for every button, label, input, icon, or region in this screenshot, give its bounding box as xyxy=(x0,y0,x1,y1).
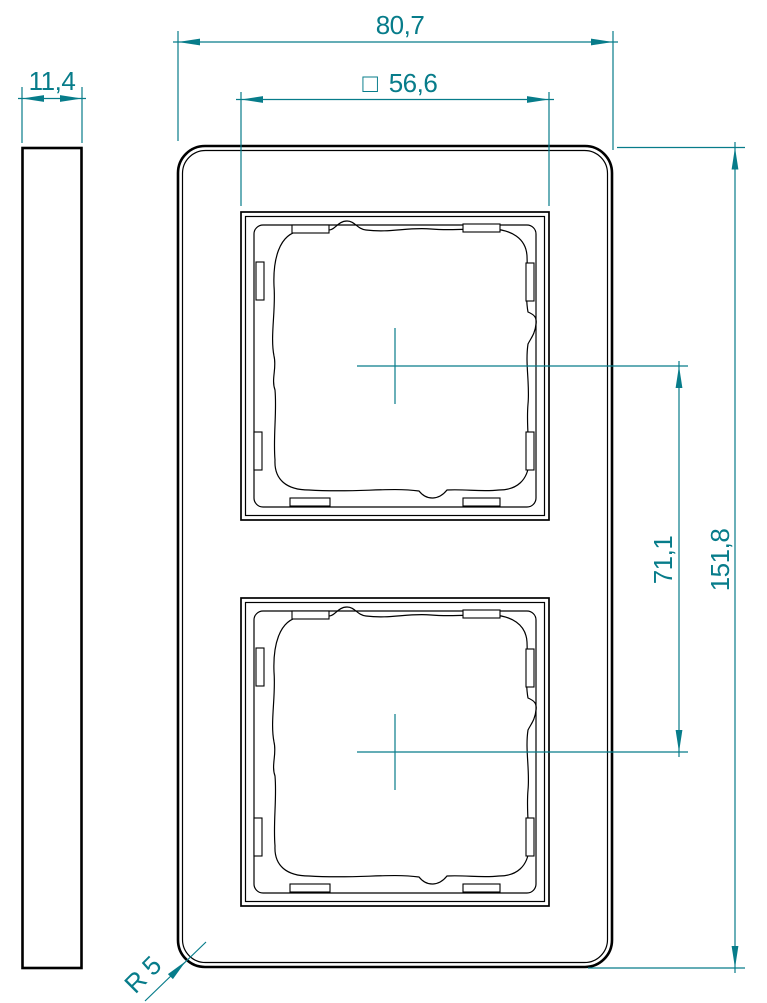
arrow-up-icon xyxy=(676,366,683,388)
arrow-up-icon xyxy=(732,148,739,170)
dim-corner-radius-label: R 5 xyxy=(118,950,167,999)
arrow-left-icon xyxy=(22,95,44,102)
dim-frame-width-label: 80,7 xyxy=(376,10,425,40)
technical-drawing-canvas: 80,7 □ 56,6 11,4 151,8 71,1 R 5 xyxy=(0,0,767,1003)
dim-frame-height-label: 151,8 xyxy=(705,529,735,592)
arrow-left-icon xyxy=(241,96,263,103)
dim-side-thickness: 11,4 xyxy=(18,66,86,143)
center-mark-1 xyxy=(357,328,688,404)
side-view-outline xyxy=(23,148,82,968)
center-mark-2 xyxy=(357,714,688,790)
arrow-right-icon xyxy=(591,39,613,46)
arrow-left-icon xyxy=(178,39,200,46)
arrow-right-icon xyxy=(527,96,549,103)
arrow-down-icon xyxy=(676,730,683,752)
arrow-down-icon xyxy=(732,946,739,968)
dim-opening-spacing: 71,1 xyxy=(648,361,682,757)
frame-outer-edge xyxy=(178,146,612,967)
dim-side-thickness-label: 11,4 xyxy=(29,66,76,96)
square-symbol: □ xyxy=(362,68,378,98)
arrow-leader-icon xyxy=(168,961,186,979)
front-view-frame xyxy=(178,146,612,967)
dimension-drawing: 80,7 □ 56,6 11,4 151,8 71,1 R 5 xyxy=(0,0,767,1003)
dim-opening-spacing-label: 71,1 xyxy=(648,536,678,585)
dim-opening-square: □ 56,6 xyxy=(236,68,554,206)
dim-corner-radius: R 5 xyxy=(118,942,206,1001)
arrow-right-icon xyxy=(60,95,82,102)
frame-inner-edge xyxy=(183,151,608,963)
dim-opening-square-label: 56,6 xyxy=(389,68,438,98)
